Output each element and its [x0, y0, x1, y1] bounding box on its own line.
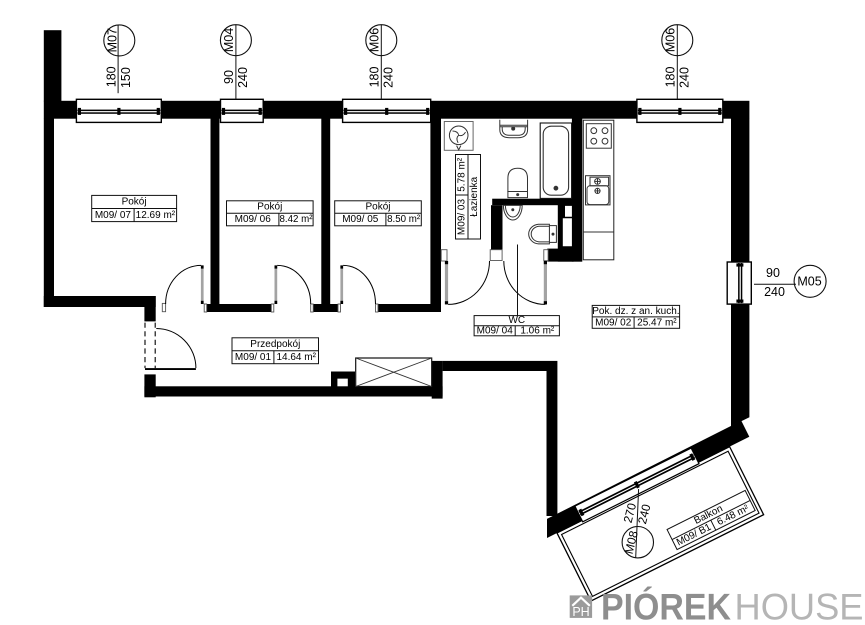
svg-text:240: 240	[678, 67, 692, 88]
svg-text:Pok. dz. z an. kuch.: Pok. dz. z an. kuch.	[592, 306, 679, 317]
svg-text:180: 180	[105, 66, 119, 87]
svg-text:90: 90	[222, 70, 236, 84]
svg-text:M09/ 05: M09/ 05	[342, 214, 379, 225]
svg-text:240: 240	[236, 67, 250, 88]
svg-text:M07: M07	[106, 28, 120, 52]
svg-text:180: 180	[367, 67, 381, 88]
svg-text:5.78 m²: 5.78 m²	[456, 157, 467, 192]
svg-text:M06: M06	[664, 28, 678, 52]
svg-text:M09/ 02: M09/ 02	[595, 317, 632, 328]
svg-text:180: 180	[663, 67, 677, 88]
svg-text:Przedpokój: Przedpokój	[250, 339, 300, 350]
svg-text:Pokój: Pokój	[122, 197, 147, 208]
svg-text:PIÓREK: PIÓREK	[601, 586, 731, 625]
svg-text:90: 90	[766, 266, 780, 280]
svg-text:1.06 m²: 1.06 m²	[520, 326, 555, 337]
svg-text:8.50 m²: 8.50 m²	[387, 214, 421, 225]
svg-text:240: 240	[382, 67, 396, 88]
svg-text:M09/ 04: M09/ 04	[477, 326, 514, 337]
svg-text:PH: PH	[572, 605, 589, 619]
svg-text:M04: M04	[222, 28, 236, 52]
svg-text:M09/ 01: M09/ 01	[235, 352, 272, 363]
svg-text:WC: WC	[508, 315, 525, 326]
svg-text:8.42 m²: 8.42 m²	[280, 214, 314, 225]
svg-text:14.64 m²: 14.64 m²	[276, 352, 316, 363]
svg-text:150: 150	[119, 67, 133, 88]
svg-text:Pokój: Pokój	[365, 202, 390, 213]
svg-text:M09/ 06: M09/ 06	[235, 214, 272, 225]
svg-text:M06: M06	[368, 28, 382, 52]
svg-text:HOUSE: HOUSE	[735, 587, 864, 625]
svg-text:M05: M05	[797, 275, 821, 289]
svg-text:M09/ 03: M09/ 03	[456, 198, 467, 235]
svg-text:25.47 m²: 25.47 m²	[637, 317, 677, 328]
svg-text:12.69 m²: 12.69 m²	[136, 210, 176, 221]
svg-text:M09/ 07: M09/ 07	[95, 210, 132, 221]
svg-text:Pokój: Pokój	[257, 202, 282, 213]
svg-text:240: 240	[764, 285, 785, 299]
svg-text:Łazienka: Łazienka	[469, 176, 480, 216]
